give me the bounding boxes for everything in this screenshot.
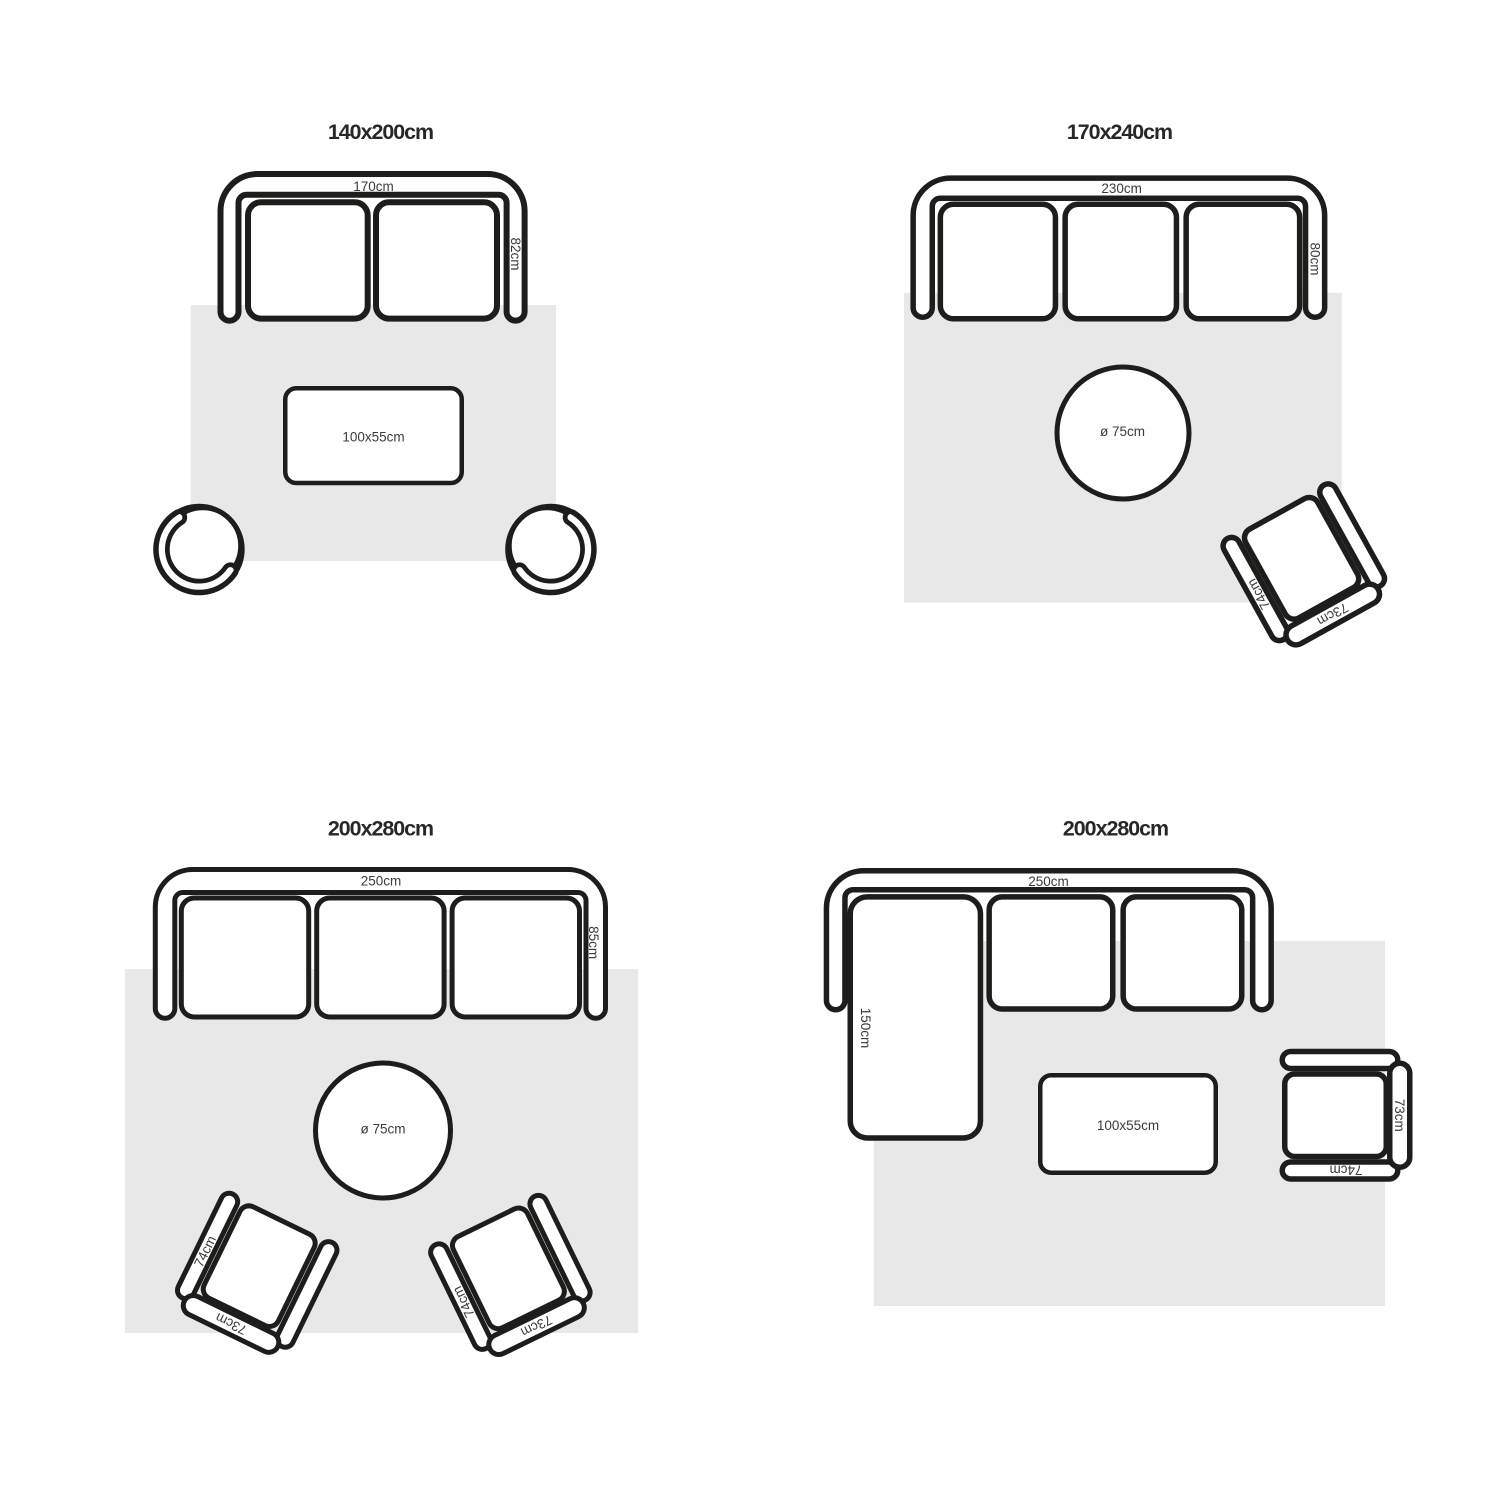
svg-text:100x55cm: 100x55cm xyxy=(342,430,404,445)
svg-text:73cm: 73cm xyxy=(1392,1099,1407,1132)
svg-text:140x200cm: 140x200cm xyxy=(328,120,433,144)
svg-text:230cm: 230cm xyxy=(1101,181,1142,196)
svg-text:170x240cm: 170x240cm xyxy=(1067,120,1172,144)
svg-text:250cm: 250cm xyxy=(1028,874,1069,889)
svg-text:ø 75cm: ø 75cm xyxy=(1100,424,1145,439)
svg-text:80cm: 80cm xyxy=(1307,242,1322,275)
svg-text:74cm: 74cm xyxy=(1329,1163,1362,1178)
svg-text:85cm: 85cm xyxy=(586,926,601,959)
svg-text:150cm: 150cm xyxy=(858,1008,873,1049)
svg-text:200x280cm: 200x280cm xyxy=(1063,817,1168,841)
svg-text:250cm: 250cm xyxy=(361,874,402,889)
svg-text:200x280cm: 200x280cm xyxy=(328,817,433,841)
svg-text:82cm: 82cm xyxy=(508,237,523,270)
svg-text:ø 75cm: ø 75cm xyxy=(360,1122,405,1137)
svg-text:170cm: 170cm xyxy=(353,179,394,194)
svg-text:100x55cm: 100x55cm xyxy=(1097,1118,1159,1133)
